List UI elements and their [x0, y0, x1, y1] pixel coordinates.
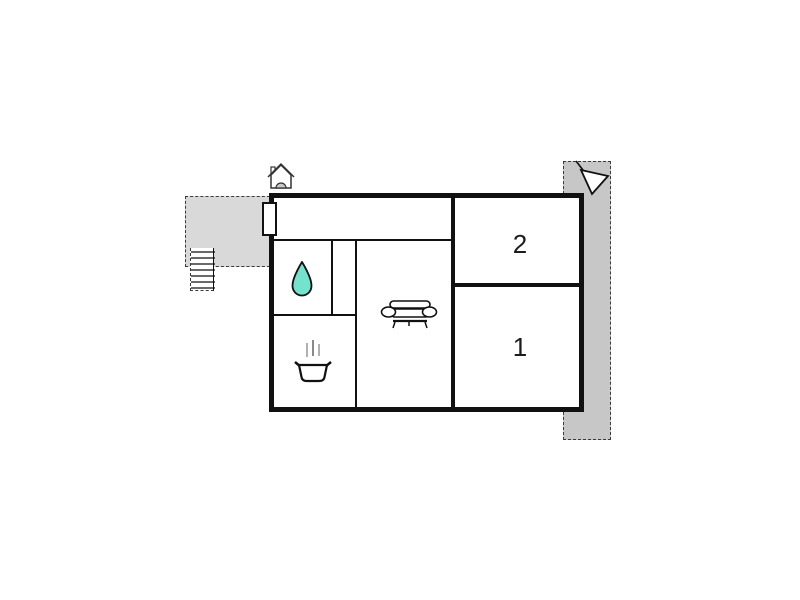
hallway-area — [274, 198, 451, 239]
wall-bathroom-bottom — [274, 314, 357, 316]
stairs — [190, 248, 214, 291]
closet-area — [333, 241, 355, 314]
wall-hallway-divider — [274, 239, 452, 241]
bedroom-2-label: 2 — [494, 228, 546, 260]
entrance-house-icon — [265, 159, 297, 191]
entrance-door — [262, 202, 277, 236]
floor-plan: 2 1 — [0, 0, 800, 600]
wall-bathroom-right — [331, 240, 333, 316]
wall-bedrooms-divider — [455, 283, 579, 287]
stairs-icon — [191, 248, 215, 291]
cooking-pot-icon — [293, 337, 333, 385]
sofa-icon — [380, 297, 438, 335]
wall-main-vertical — [451, 198, 455, 407]
view-direction-arrow-icon — [572, 157, 612, 197]
wall-livingroom-left — [355, 240, 357, 407]
water-drop-icon — [290, 261, 314, 297]
bedroom-1-label: 1 — [494, 331, 546, 363]
